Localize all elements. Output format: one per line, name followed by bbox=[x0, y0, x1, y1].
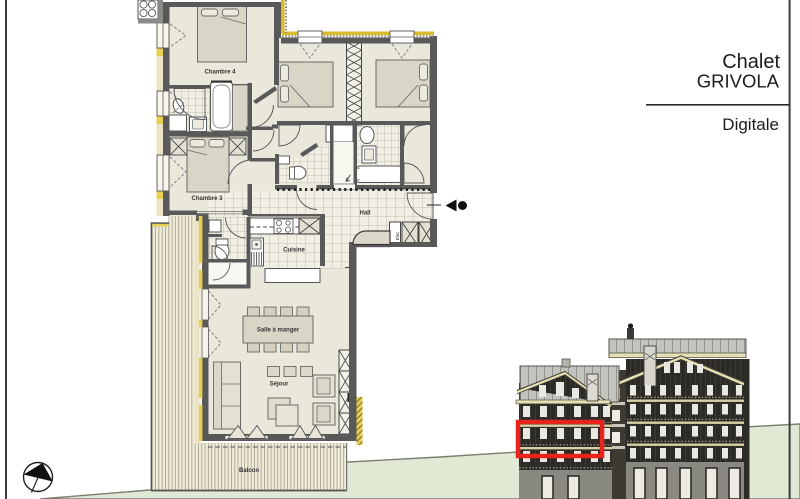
svg-text:Hall: Hall bbox=[359, 211, 370, 217]
svg-text:Balcon: Balcon bbox=[239, 468, 259, 474]
svg-text:Salle à manger: Salle à manger bbox=[257, 328, 300, 334]
svg-text:GRIVOLA: GRIVOLA bbox=[697, 71, 780, 92]
svg-text:Digitale: Digitale bbox=[722, 115, 779, 134]
svg-text:Cuisine: Cuisine bbox=[283, 248, 305, 254]
svg-text:Chambre 3: Chambre 3 bbox=[191, 196, 223, 202]
svg-text:Elec: Elec bbox=[395, 231, 400, 241]
svg-text:Séjour: Séjour bbox=[270, 382, 289, 388]
svg-text:Chambre 4: Chambre 4 bbox=[204, 70, 236, 76]
